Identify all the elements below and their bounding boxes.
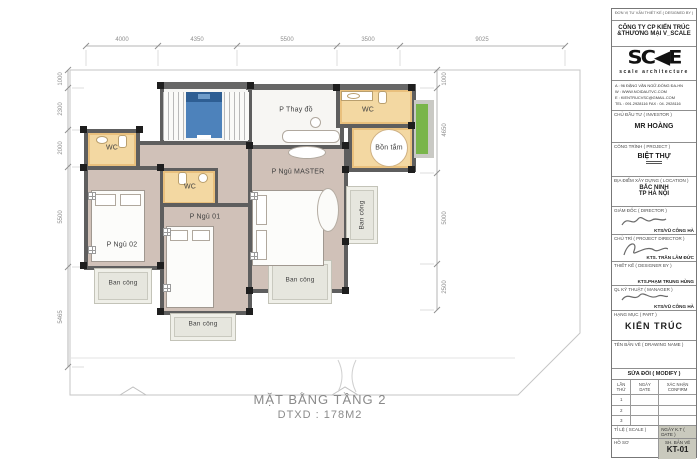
tb-location-line2: TP HÀ NỘI (612, 191, 696, 197)
tb-designer-section: THIẾT KẾ ( DESIGNER BY ) KTS.PHẠM TRUNG … (612, 261, 696, 285)
column (247, 82, 254, 89)
tb-location-section: ĐỊA ĐIỂM XÂY DỰNG ( LOCATION ) BẮC NINH … (612, 176, 696, 206)
elevator-door (197, 135, 211, 139)
tb-investor-name: MR HOÀNG (612, 123, 696, 130)
modify-cell (630, 405, 658, 415)
column (408, 84, 415, 91)
company-logo-subtitle: scale architecture (612, 69, 696, 75)
room-label-balcony-right: Ban công (285, 277, 314, 284)
tb-project-label: CÔNG TRÌNH ( PROJECT ) (612, 143, 696, 149)
column (342, 287, 349, 294)
tb-address: A : 96 ĐẶNG VĂN NGỮ-ĐỐNG ĐA-HN (615, 83, 693, 89)
column (246, 142, 253, 149)
tb-investor-section: CHỦ ĐẦU TƯ ( INVESTOR ) MR HOÀNG (612, 110, 696, 142)
wall-light (250, 252, 258, 260)
column (408, 166, 415, 173)
toilet-icon (378, 91, 387, 104)
room-label-dressing: P Thay đồ (279, 107, 312, 114)
modify-cell (658, 394, 696, 404)
dim-top-1: 4000 (115, 37, 128, 43)
rug-master (317, 188, 339, 232)
dim-top-5: 9025 (475, 37, 488, 43)
room-label-balcony-master: Ban công (359, 200, 366, 229)
pillow (192, 230, 210, 241)
project-underline (646, 161, 662, 162)
column (157, 164, 164, 171)
tb-project-section: CÔNG TRÌNH ( PROJECT ) BIỆT THỰ (612, 142, 696, 176)
dim-left-4: 5500 (58, 210, 64, 223)
ottoman-icon (288, 146, 326, 159)
drawing-sheet: WC P Ngủ 02 WC P Ngủ 01 P Thay đồ WC Bồn… (0, 0, 700, 466)
column (408, 122, 415, 129)
dim-right-3: 5000 (442, 211, 448, 224)
manager-signature (618, 289, 668, 305)
room-label-wc-mid: WC (184, 184, 196, 191)
tb-company-line1: CÔNG TY CP KIẾN TRÚC (612, 21, 696, 31)
column (80, 262, 87, 269)
wall-band-top-stair (158, 82, 254, 89)
tb-manager-section: QL KỸ THUẬT ( MANAGER ) KTS/VŨ CÔNG HÀ (612, 285, 696, 310)
sink-icon (347, 93, 360, 99)
modify-col-header: XÁC NHẬN CONFIRM (658, 380, 696, 394)
tb-phone: TEL : 091.2928116 FAX : 04. 2928116 (615, 101, 693, 107)
room-label-bedroom1: P Ngủ 01 (190, 214, 221, 221)
company-logo: SC◀E (612, 48, 696, 67)
column (80, 126, 87, 133)
dim-top-2: 4350 (190, 37, 203, 43)
modify-row-number: 3 (612, 415, 630, 425)
pillow (170, 230, 188, 241)
tb-drawing-name-label: TÊN BẢN VẼ ( DRAWING NAME ) (612, 341, 696, 347)
pillow (95, 194, 116, 206)
column (333, 84, 340, 91)
tb-modify-table: LẦN THỨ NGÀY DATE XÁC NHẬN CONFIRM 1 2 3 (612, 379, 696, 425)
elevator-header-panel (198, 94, 210, 99)
modify-cell (630, 415, 658, 425)
tb-designer-name: KTS.PHẠM TRUNG HÙNG (638, 279, 694, 284)
tb-date-label: NGÀY K.T ( DATE ) (659, 426, 696, 437)
tb-dossier-label: HỒ SƠ (612, 439, 658, 445)
sink-icon (96, 136, 108, 144)
dim-right-4: 2500 (442, 280, 448, 293)
dim-left-2: 2300 (58, 102, 64, 115)
dim-top-4: 3500 (361, 37, 374, 43)
modify-col-header: LẦN THỨ (612, 380, 630, 394)
tb-header-section: ĐƠN VỊ TƯ VẤN THIẾT KẾ ( DESIGNED BY ) (612, 9, 696, 20)
tb-chief-section: CHỦ TRÌ ( PROJECT DIRECTOR ) KTS. TRẦN L… (612, 234, 696, 261)
wardrobe-icon (282, 130, 340, 143)
title-block: ĐƠN VỊ TƯ VẤN THIẾT KẾ ( DESIGNED BY ) C… (611, 8, 697, 458)
tb-manager-name: KTS/VŨ CÔNG HÀ (654, 304, 694, 309)
sink-icon (198, 173, 208, 183)
column (342, 238, 349, 245)
room-label-balcony-middle: Ban công (188, 321, 217, 328)
plan-subtitle: DTXD : 178M2 (278, 409, 363, 421)
tb-location-label: ĐỊA ĐIỂM XÂY DỰNG ( LOCATION ) (612, 177, 696, 183)
wall-light (88, 192, 96, 200)
modify-cell (630, 394, 658, 404)
tb-company-section: CÔNG TY CP KIẾN TRÚC &THƯƠNG MẠI V_SCALE (612, 20, 696, 46)
tb-director-name: KTS/VŨ CÔNG HÀ (654, 228, 694, 233)
tb-part-name: KIẾN TRÚC (612, 321, 696, 331)
dim-top-3: 5500 (280, 37, 293, 43)
column (342, 166, 349, 173)
tb-sheetno-row: HỒ SƠ SH. BẢN VẼ KT-01 (612, 438, 696, 459)
wall-band-top-right (246, 84, 416, 90)
wall-light (163, 284, 171, 292)
column (157, 82, 164, 89)
modify-row-number: 1 (612, 394, 630, 404)
modify-row-number: 2 (612, 405, 630, 415)
column (136, 126, 143, 133)
tb-scale-label: TỈ LỆ ( SCALE ) (612, 426, 658, 432)
column (246, 287, 253, 294)
wall-light (88, 246, 96, 254)
window-green-strip (416, 104, 428, 154)
stairs-right-flight (224, 92, 249, 140)
elevator-cab (186, 102, 222, 138)
wall-light (250, 192, 258, 200)
tb-director-section: GIÁM ĐỐC ( DIRECTOR ) KTS/VŨ CÔNG HÀ (612, 206, 696, 234)
wall-light (163, 228, 171, 236)
dim-right-2: 4650 (442, 123, 448, 136)
room-label-wc-topright: WC (362, 107, 374, 114)
dim-left-5: 5465 (58, 310, 64, 323)
dim-left-3: 2000 (58, 141, 64, 154)
column (157, 308, 164, 315)
tb-company-line2: &THƯƠNG MẠI V_SCALE (612, 31, 696, 37)
project-underline (646, 163, 662, 164)
stairs-left-flight (163, 92, 184, 140)
tb-drawing-name-section: TÊN BẢN VẼ ( DRAWING NAME ) (612, 340, 696, 368)
tb-chief-name: KTS. TRẦN LÂM ĐỨC (647, 255, 694, 260)
modify-cell (658, 415, 696, 425)
modify-col-header: NGÀY DATE (630, 380, 658, 394)
tb-logo-section: SC◀E scale architecture (612, 46, 696, 80)
room-label-bedroom2: P Ngủ 02 (107, 242, 138, 249)
tb-project-name: BIỆT THỰ (612, 153, 696, 160)
tb-sheet-number: KT-01 (659, 445, 696, 454)
pillow (120, 194, 141, 206)
tb-scale-row: TỈ LỆ ( SCALE ) NGÀY K.T ( DATE ) (612, 425, 696, 438)
plan-title: MẶT BẰNG TẦNG 2 (254, 392, 387, 407)
tb-designer-label: THIẾT KẾ ( DESIGNER BY ) (612, 262, 696, 268)
column (246, 308, 253, 315)
tb-modify-section: SỬA ĐỔI ( MODIFY ) (612, 368, 696, 379)
room-label-master: P Ngủ MASTER (272, 169, 325, 176)
tb-modify-label: SỬA ĐỔI ( MODIFY ) (612, 369, 696, 377)
column (80, 164, 87, 171)
tb-part-section: HẠNG MỤC ( PART ) KIẾN TRÚC (612, 310, 696, 340)
dim-right-1: 1000 (442, 72, 448, 85)
room-label-balcony-left: Ban công (108, 280, 137, 287)
tb-investor-label: CHỦ ĐẦU TƯ ( INVESTOR ) (612, 111, 696, 117)
tb-address-section: A : 96 ĐẶNG VĂN NGỮ-ĐỐNG ĐA-HN W : WWW.N… (612, 80, 696, 110)
tb-part-label: HẠNG MỤC ( PART ) (612, 311, 696, 317)
tb-header-text: ĐƠN VỊ TƯ VẤN THIẾT KẾ ( DESIGNED BY ) (612, 9, 696, 15)
column (157, 262, 164, 269)
toilet-icon (118, 135, 127, 148)
modify-cell (658, 405, 696, 415)
column (342, 142, 349, 149)
dim-left-1: 1000 (58, 72, 64, 85)
room-label-wc-left: WC (106, 145, 118, 152)
wardrobe-stool-icon (310, 117, 321, 128)
room-label-bathtub: Bồn tắm (375, 145, 402, 152)
